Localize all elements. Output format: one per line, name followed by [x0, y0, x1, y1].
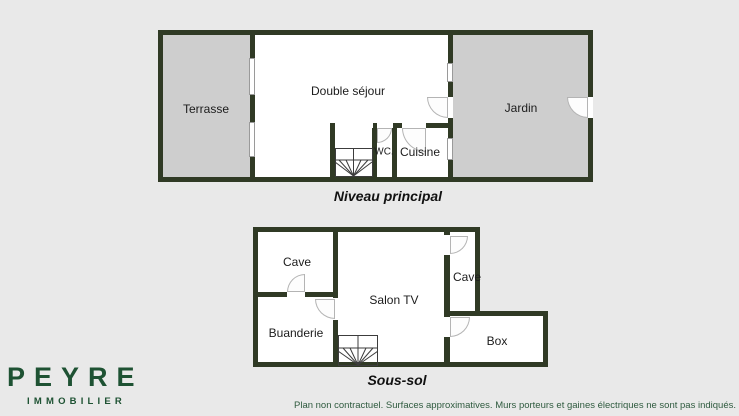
room-label-sejour: Double séjour: [311, 84, 385, 98]
wall: [448, 35, 453, 63]
wall: [250, 95, 255, 122]
room-label-box: Box: [487, 334, 508, 348]
wall: [250, 157, 255, 177]
wall: [448, 160, 453, 177]
lower-plan-title: Sous-sol: [367, 372, 426, 388]
plan-disclaimer: Plan non contractuel. Surfaces approxima…: [294, 400, 736, 411]
wall: [543, 311, 548, 367]
staircase-upper: [335, 148, 373, 177]
window-cuisine: [447, 138, 453, 160]
window-sejour: [447, 63, 453, 82]
room-label-cuisine: Cuisine: [400, 145, 440, 159]
brand-name: PEYRE: [7, 363, 144, 393]
room-label-wc: WC.: [374, 147, 393, 158]
wall: [253, 227, 258, 367]
room-label-cave-left: Cave: [283, 255, 311, 269]
room-label-buanderie: Buanderie: [269, 326, 324, 340]
wall: [448, 118, 453, 138]
wall: [333, 232, 338, 298]
wall: [158, 30, 163, 182]
staircase-lower: [338, 335, 378, 366]
wall: [158, 30, 593, 35]
floorplan-canvas: Terrasse Double séjour WC. Cuisine Jardi…: [0, 0, 739, 416]
wall: [158, 177, 593, 182]
room-label-cave-right: Cave: [453, 270, 481, 284]
wall: [444, 337, 450, 362]
window-terrasse-1: [249, 58, 255, 95]
door-opening-sejour: [448, 97, 453, 118]
wall: [426, 123, 448, 128]
upper-plan-title: Niveau principal: [334, 188, 442, 204]
wall: [305, 292, 338, 297]
room-label-salon-tv: Salon TV: [369, 293, 418, 307]
wall: [250, 35, 255, 58]
wall: [444, 255, 450, 317]
room-label-terrasse: Terrasse: [183, 102, 229, 116]
window-terrasse-2: [249, 122, 255, 157]
room-label-jardin: Jardin: [505, 101, 538, 115]
door-opening-jardin: [588, 97, 593, 118]
brand-tagline: IMMOBILIER: [27, 396, 144, 407]
wall: [448, 82, 453, 97]
wall: [253, 362, 548, 367]
door-opening-cave-left: [287, 292, 305, 297]
cave-left-buanderie-area: [258, 232, 333, 362]
wall: [444, 227, 450, 235]
wall: [444, 311, 548, 316]
brand-logo: PEYRE IMMOBILIER: [7, 363, 144, 407]
wall: [253, 292, 287, 297]
